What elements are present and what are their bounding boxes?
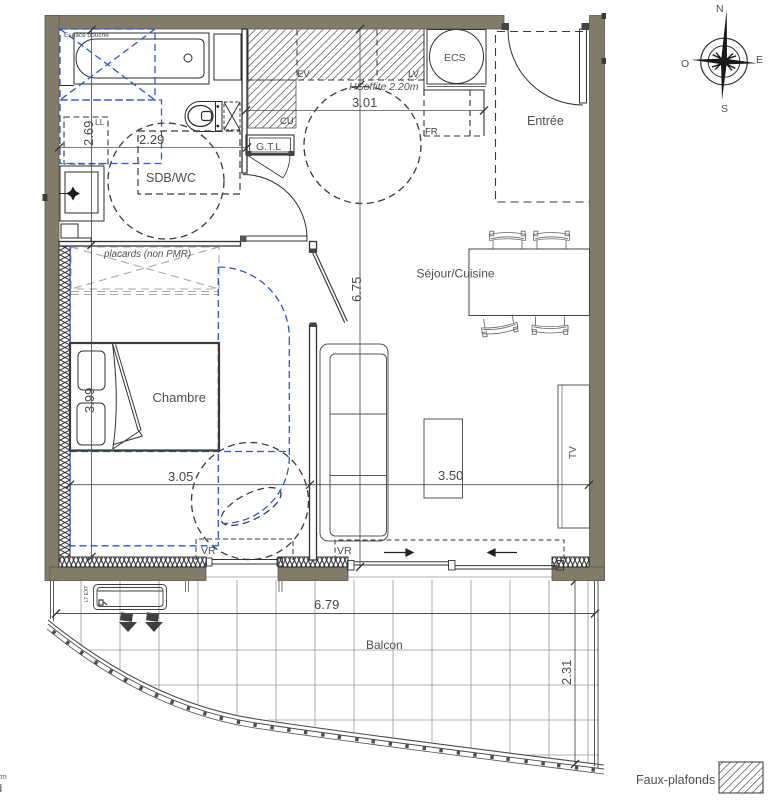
svg-text:TV: TV: [568, 446, 579, 459]
svg-text:Espace douche: Espace douche: [64, 32, 109, 39]
svg-text:SDB/WC: SDB/WC: [146, 171, 196, 185]
svg-text:Séjour/Cuisine: Séjour/Cuisine: [417, 267, 495, 281]
svg-text:2.31: 2.31: [559, 660, 574, 685]
svg-text:2.69: 2.69: [81, 121, 96, 146]
svg-text:Entrée: Entrée: [527, 114, 564, 128]
svg-text:CU: CU: [280, 116, 294, 127]
svg-text:2.29: 2.29: [139, 132, 164, 147]
svg-text:Chambre: Chambre: [153, 390, 206, 405]
svg-text:O: O: [681, 58, 689, 70]
svg-text:6.75: 6.75: [349, 277, 364, 302]
svg-text:2m: 2m: [0, 774, 7, 781]
svg-text:Balcon: Balcon: [366, 638, 403, 652]
svg-text:d: d: [0, 783, 2, 795]
svg-text:G.T.L: G.T.L: [256, 141, 281, 153]
svg-text:ECS: ECS: [444, 52, 466, 64]
svg-text:3.50: 3.50: [438, 468, 463, 483]
svg-text:EV: EV: [297, 69, 310, 80]
svg-text:LT EXT: LT EXT: [84, 586, 90, 603]
svg-text:LV: LV: [408, 69, 420, 80]
svg-text:placards (non PMR): placards (non PMR): [103, 249, 191, 260]
svg-text:3.05: 3.05: [168, 469, 193, 484]
svg-text:VR: VR: [201, 545, 216, 557]
svg-text:6.79: 6.79: [314, 597, 339, 612]
svg-text:3.01: 3.01: [352, 95, 377, 110]
svg-text:S: S: [721, 103, 728, 115]
svg-text:VR: VR: [337, 545, 352, 557]
svg-text:E: E: [756, 54, 763, 66]
svg-text:HSoffite 2.20m: HSoffite 2.20m: [349, 81, 419, 93]
svg-text:LL: LL: [95, 117, 105, 127]
svg-text:FR: FR: [425, 127, 438, 138]
svg-text:3.99: 3.99: [82, 388, 97, 413]
svg-text:Faux-plafonds: Faux-plafonds: [636, 773, 715, 787]
svg-text:N: N: [716, 3, 724, 15]
